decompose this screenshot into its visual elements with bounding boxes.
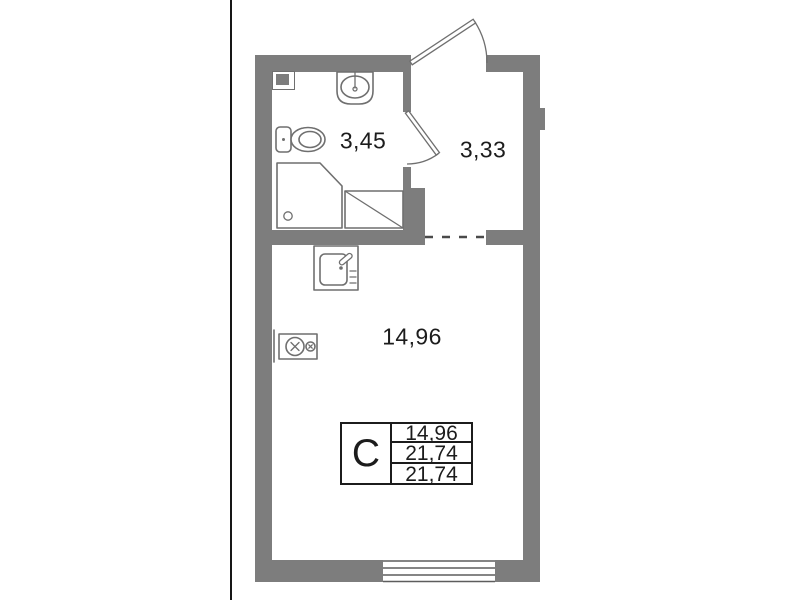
washbasin-icon xyxy=(337,72,373,104)
window xyxy=(383,561,495,582)
legend-type-letter: С xyxy=(342,424,392,483)
living-area-label: 14,96 xyxy=(382,324,442,351)
legend-table: С 14,96 21,74 21,74 xyxy=(340,422,473,485)
kitchen-sink-icon xyxy=(314,246,358,290)
entry-door-leaf xyxy=(410,19,476,65)
stove-icon xyxy=(274,330,317,362)
bathroom-area-label: 3,45 xyxy=(340,128,386,155)
legend-total-area-2: 21,74 xyxy=(392,464,471,483)
bathroom-door xyxy=(405,111,439,164)
washing-machine-icon xyxy=(345,191,403,228)
hall-area-label: 3,33 xyxy=(460,137,506,164)
legend-total-area: 21,74 xyxy=(392,443,471,464)
bathroom-door-swing-arc xyxy=(407,154,438,164)
legend-living-area: 14,96 xyxy=(392,424,471,443)
shower-icon xyxy=(277,163,342,228)
floorplan: 3,45 3,33 14,96 С 14,96 21,74 21,74 xyxy=(0,0,799,600)
toilet-icon xyxy=(276,127,325,152)
entry-door-swing-arc xyxy=(474,21,487,63)
entry-door xyxy=(410,19,487,65)
bathroom-door-leaf xyxy=(405,111,439,155)
fixtures-overlay xyxy=(0,0,799,600)
